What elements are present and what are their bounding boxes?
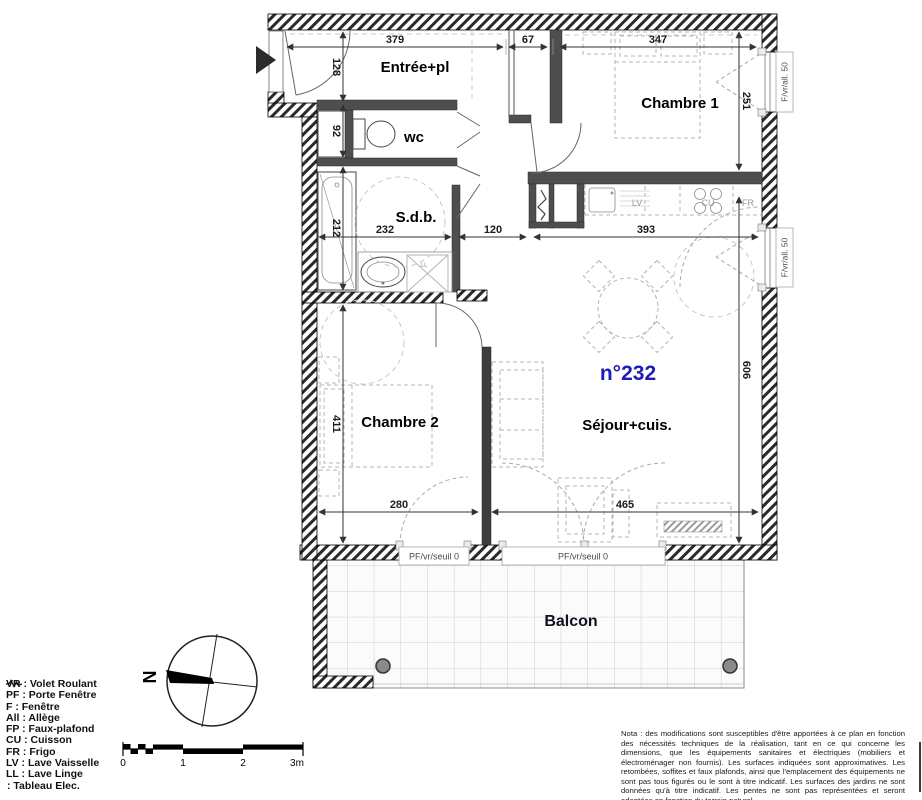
wc-door [457,112,480,148]
room-wc: wc [403,129,424,146]
pf-label: PF/vr/seuil 0 [409,552,459,562]
cu-label: CU [702,198,715,208]
unit-number: n°232 [600,362,656,385]
dim-120: 120 [484,224,502,236]
dim-465: 465 [616,499,634,511]
washbasin [358,252,452,292]
window-1: F/vr/all. 50 [716,48,793,116]
ll-label: LL [420,262,428,269]
nota-text: Nota : des modifications sont susceptibl… [621,729,905,800]
room-chambre2: Chambre 2 [361,414,439,431]
room-balcon: Balcon [544,613,597,630]
dim-393: 393 [637,224,655,236]
dim-379: 379 [386,34,404,46]
fr-label: FR [742,198,754,208]
dim-251: 251 [740,92,752,110]
dim-606: 606 [740,361,752,379]
dim-280: 280 [390,499,408,511]
balcony-side-wall [313,560,327,686]
dim-232: 232 [376,224,394,236]
balcony-threshold [313,676,373,688]
washing-machine: LL [407,255,448,292]
scale-tick-2: 2 [240,758,246,769]
floor-plan-page: LL LV CU FR [0,0,922,800]
pf-chambre2: PF/vr/seuil 0 [396,477,471,565]
dim-347: 347 [649,34,667,46]
scale-tick-3m: 3m [290,758,304,769]
lv-label: LV [632,198,642,208]
dining-table [583,260,672,352]
room-sejour: Séjour+cuis. [582,417,672,434]
chambre2-door [436,303,482,347]
page-edge-mark [919,742,921,792]
guide-circles [290,31,757,384]
window-label: F/vr/all. 50 [780,237,790,277]
legend-item-label: : Tableau Elec. [7,780,80,792]
room-sdb: S.d.b. [396,209,437,226]
balcony-drain [723,659,737,673]
legend-item-tableau: : Tableau Elec. [6,781,186,792]
balcony-drain [376,659,390,673]
dim-92: 92 [330,125,342,137]
window-label: F/vr/all. 50 [780,62,790,102]
room-chambre1: Chambre 1 [641,95,719,112]
dim-128: 128 [330,58,342,76]
legend-item: PF : Porte Fenêtre [6,690,186,701]
kitchen-sink [589,188,615,212]
bed-chambre1 [583,32,732,138]
dim-411: 411 [330,415,342,433]
chambre1-door [531,123,581,173]
dim-67: 67 [522,34,534,46]
balcony [313,560,744,688]
sofa [492,362,543,467]
legend: VR : Volet Roulant PF : Porte Fenêtre F … [6,679,186,792]
sdb-door [457,166,480,218]
pf-label: PF/vr/seuil 0 [558,552,608,562]
room-entree: Entrée+pl [381,59,450,76]
dim-212: 212 [330,219,342,237]
tableau-elec-icon [538,190,546,220]
tv-bench [657,503,731,537]
toilet [353,119,395,149]
